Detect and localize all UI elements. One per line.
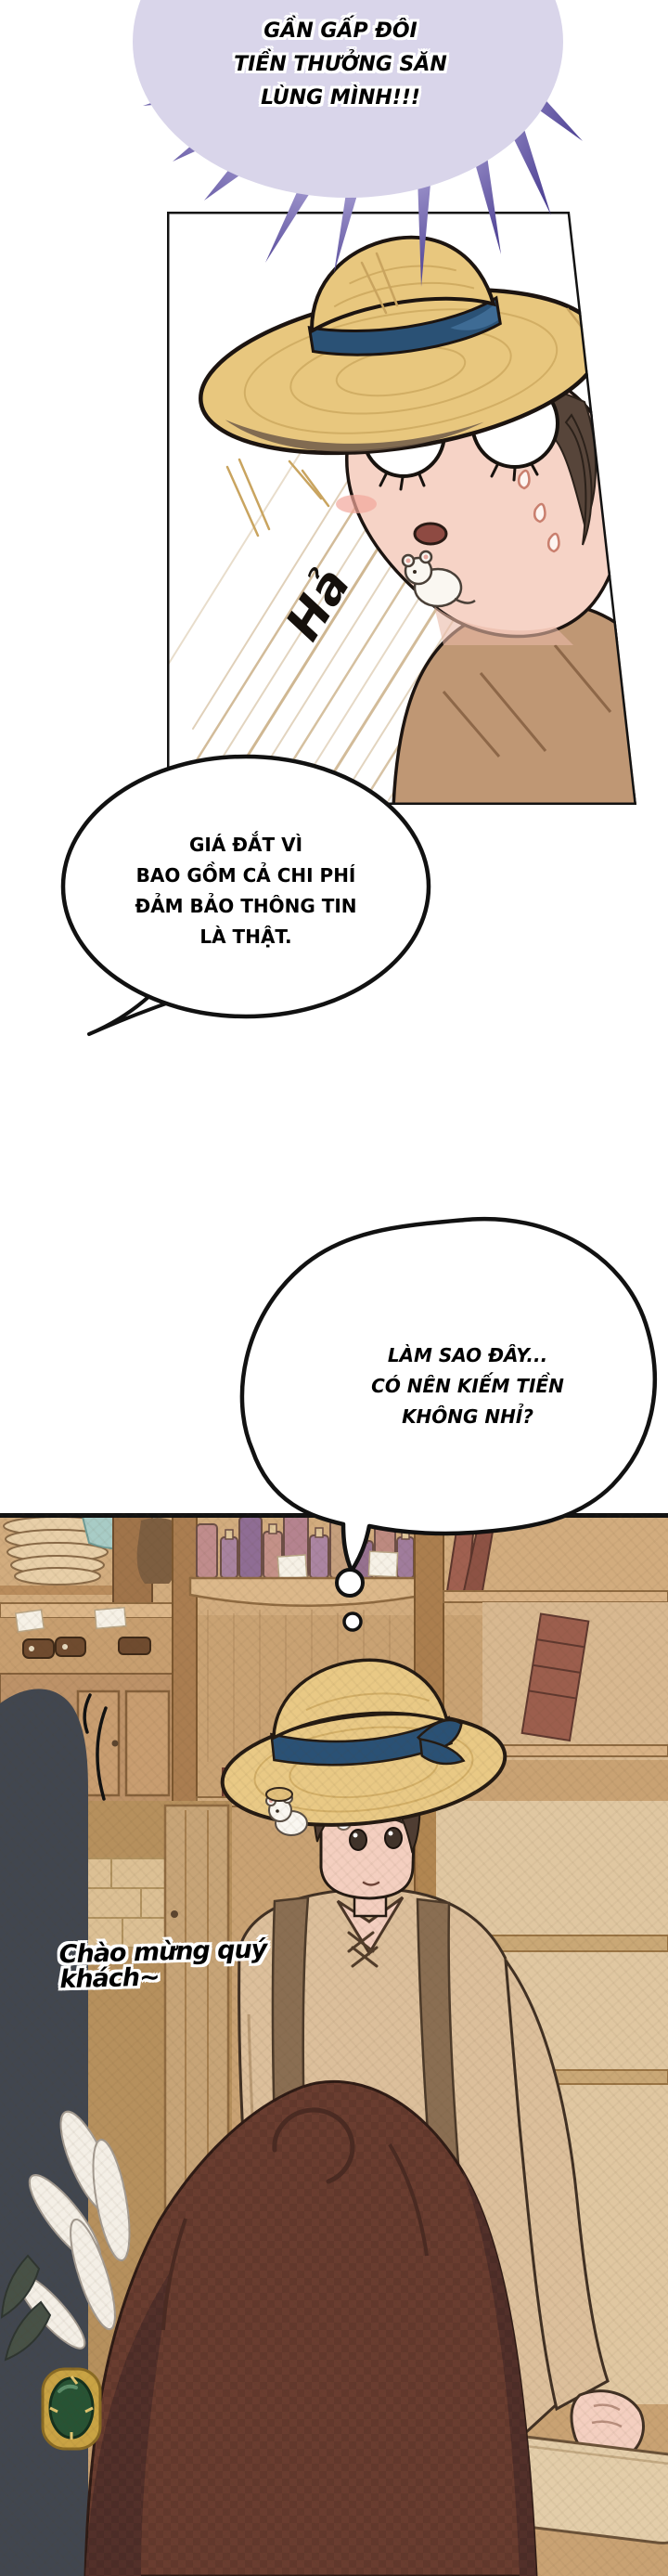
cheek-blush [336,495,377,513]
mouth [415,524,446,544]
webtoon-page: GẦN GẤP ĐÔI TIỀN THƯỞNG SĂN LÙNG MÌNH!!! [0,0,668,2576]
gem-brooch [43,2369,100,2449]
thought-trail-circle-1 [337,1570,363,1596]
speech-bubble-text: GIÁ ĐẮT VÌ BAO GỒM CẢ CHI PHÍ ĐẢM BẢO TH… [104,830,388,952]
thought-bubble-text: LÀM SAO ĐÂY... CÓ NÊN KIẾM TIỀN KHÔNG NH… [330,1340,605,1432]
mouse-mini-hat [266,1788,292,1801]
speech-line-3: ĐẢM BẢO THÔNG TIN [104,891,388,922]
speech-line-2: BAO GỒM CẢ CHI PHÍ [104,861,388,891]
shop-panel [0,1513,668,2576]
greeting-text: Chào mừng quý khách~ [58,1935,366,1993]
thought-line-1: LÀM SAO ĐÂY... [330,1340,605,1371]
shop-counter [0,1603,181,1674]
shop-art [0,1513,668,2576]
burst-line-2: TIỀN THƯỞNG SĂN [197,48,484,82]
speech-line-1: GIÁ ĐẮT VÌ [104,830,388,861]
speech-line-4: LÀ THẬT. [104,922,388,952]
jug [137,1518,177,1584]
burst-bubble-text: GẦN GẤP ĐÔI TIỀN THƯỞNG SĂN LÙNG MÌNH!!! [197,15,484,115]
thought-line-3: KHÔNG NHỈ? [330,1402,605,1432]
thought-trail-circle-2 [344,1613,361,1630]
burst-line-3: LÙNG MÌNH!!! [197,82,484,115]
burst-line-1: GẦN GẤP ĐÔI [197,15,484,48]
floor-tiles [82,1858,171,1948]
thought-line-2: CÓ NÊN KIẾM TIỀN [330,1371,605,1402]
door-handle [171,1910,178,1918]
